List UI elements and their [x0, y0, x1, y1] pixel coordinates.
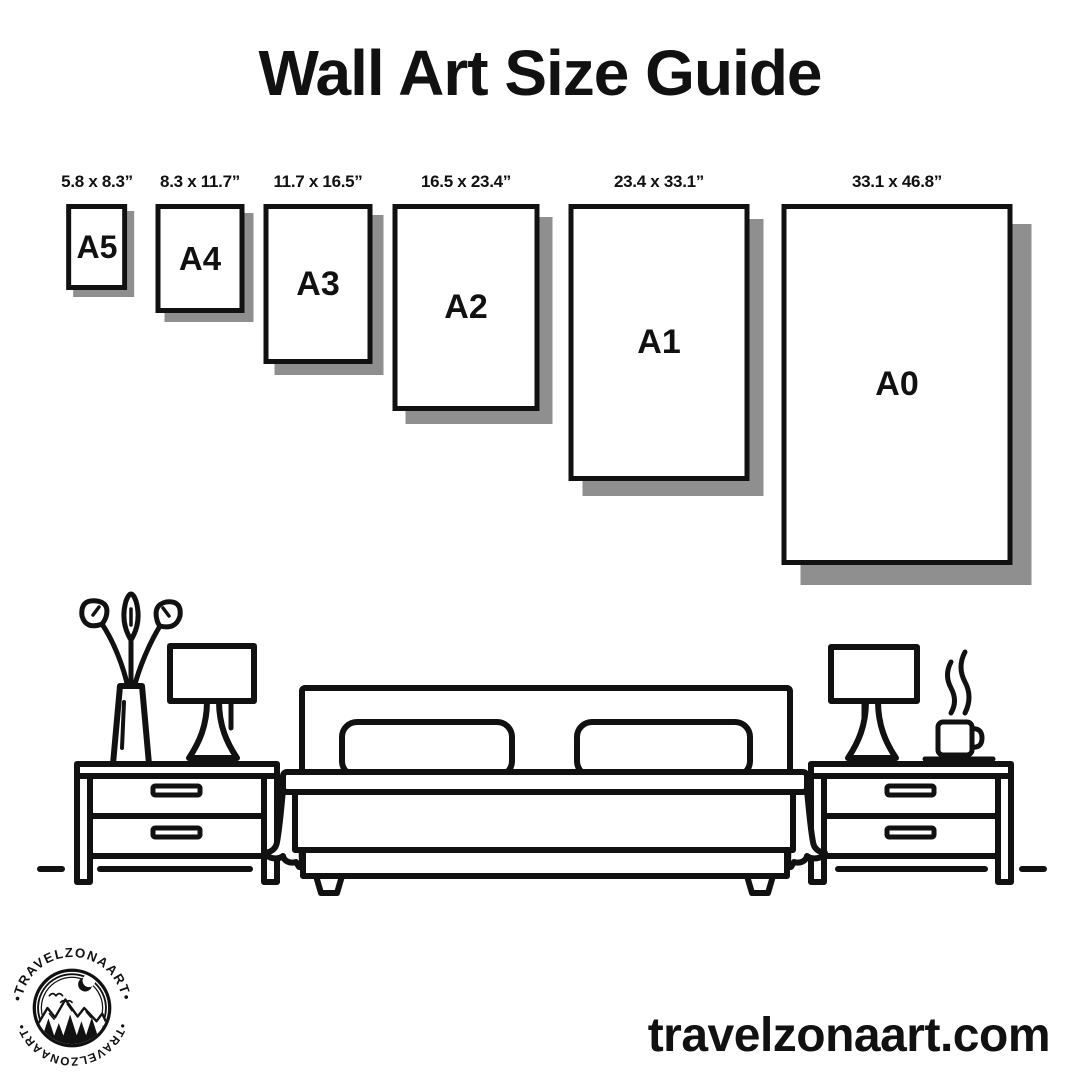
brand-logo-badge: •TRAVELZONAART• •TRAVELZONAART•	[6, 942, 138, 1074]
size-box-a1: A1	[569, 204, 750, 481]
size-code-a2: A2	[444, 288, 487, 327]
size-item-a5: 5.8 x 8.3” A5	[61, 170, 133, 290]
size-code-a0: A0	[875, 365, 918, 404]
size-dimensions-a4: 8.3 x 11.7”	[160, 170, 240, 194]
size-code-a4: A4	[179, 240, 221, 278]
size-dimensions-a2: 16.5 x 23.4”	[421, 170, 511, 194]
size-box-a5: A5	[66, 204, 127, 290]
size-box-a2: A2	[393, 204, 540, 411]
bed-icon	[265, 688, 825, 893]
plant-icon	[82, 594, 180, 764]
size-dimensions-a3: 11.7 x 16.5”	[273, 170, 362, 194]
size-item-a0: 33.1 x 46.8” A0	[782, 170, 1013, 565]
bedroom-scene-illustration	[0, 580, 1080, 900]
lamp-right-icon	[831, 647, 917, 758]
size-box-a0: A0	[782, 204, 1013, 565]
size-item-a1: 23.4 x 33.1” A1	[569, 170, 750, 481]
coffee-cup-icon	[925, 652, 993, 759]
size-dimensions-a0: 33.1 x 46.8”	[852, 170, 942, 194]
size-code-a5: A5	[77, 229, 118, 266]
size-item-a2: 16.5 x 23.4” A2	[393, 170, 540, 411]
size-item-a4: 8.3 x 11.7” A4	[156, 170, 245, 313]
size-box-a4: A4	[156, 204, 245, 313]
page-title: Wall Art Size Guide	[0, 36, 1080, 110]
nightstand-right-icon	[811, 764, 1011, 882]
lamp-left-icon	[170, 646, 254, 758]
website-url: travelzonaart.com	[648, 1008, 1050, 1063]
size-code-a3: A3	[296, 265, 339, 304]
size-dimensions-a1: 23.4 x 33.1”	[614, 170, 704, 194]
size-code-a1: A1	[637, 323, 680, 362]
size-item-a3: 11.7 x 16.5” A3	[264, 170, 373, 364]
size-dimensions-a5: 5.8 x 8.3”	[61, 170, 133, 194]
nightstand-left-icon	[77, 764, 277, 882]
size-box-a3: A3	[264, 204, 373, 364]
